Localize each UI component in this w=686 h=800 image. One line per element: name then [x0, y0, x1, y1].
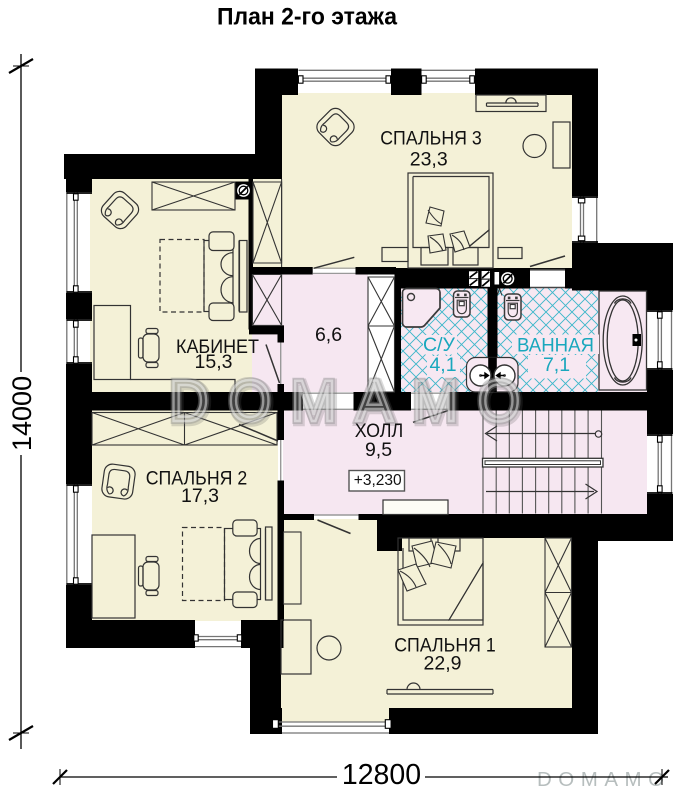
svg-text:7,1: 7,1 [543, 354, 570, 376]
svg-text:4,1: 4,1 [429, 354, 456, 376]
svg-text:22,9: 22,9 [424, 653, 462, 675]
svg-text:6,6: 6,6 [315, 324, 342, 346]
svg-text:+3,230: +3,230 [354, 472, 402, 489]
svg-text:14000: 14000 [7, 376, 37, 451]
svg-text:12800: 12800 [342, 759, 421, 791]
svg-text:9,5: 9,5 [365, 439, 392, 461]
svg-text:СПАЛЬНЯ 3: СПАЛЬНЯ 3 [380, 128, 482, 150]
svg-text:15,3: 15,3 [195, 351, 233, 373]
svg-text:DOMAMO: DOMAMO [537, 768, 671, 791]
svg-text:С/У: С/У [423, 334, 456, 356]
svg-text:23,3: 23,3 [410, 148, 448, 170]
svg-text:17,3: 17,3 [181, 485, 219, 507]
svg-text:План 2-го этажа: План 2-го этажа [217, 4, 398, 31]
